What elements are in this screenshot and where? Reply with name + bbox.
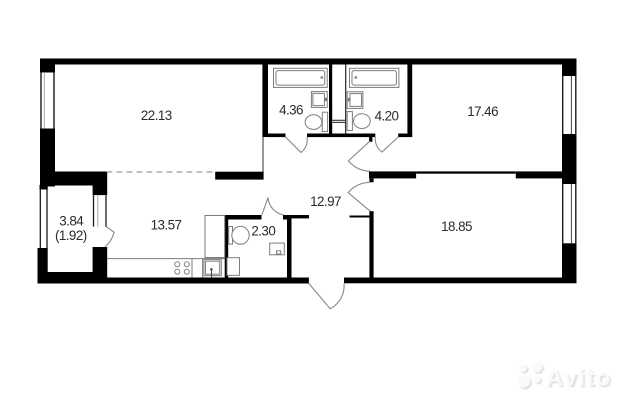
svg-text:18.85: 18.85	[441, 219, 472, 234]
svg-text:22.13: 22.13	[141, 108, 172, 123]
svg-text:Avito: Avito	[546, 365, 612, 391]
svg-text:(1.92): (1.92)	[55, 228, 87, 243]
svg-text:12.97: 12.97	[310, 194, 341, 209]
svg-text:2.30: 2.30	[251, 224, 275, 239]
svg-text:13.57: 13.57	[151, 217, 182, 232]
svg-text:4.20: 4.20	[375, 109, 399, 124]
svg-text:3.84: 3.84	[59, 214, 84, 229]
svg-text:17.46: 17.46	[467, 104, 498, 119]
svg-text:4.36: 4.36	[279, 103, 303, 118]
